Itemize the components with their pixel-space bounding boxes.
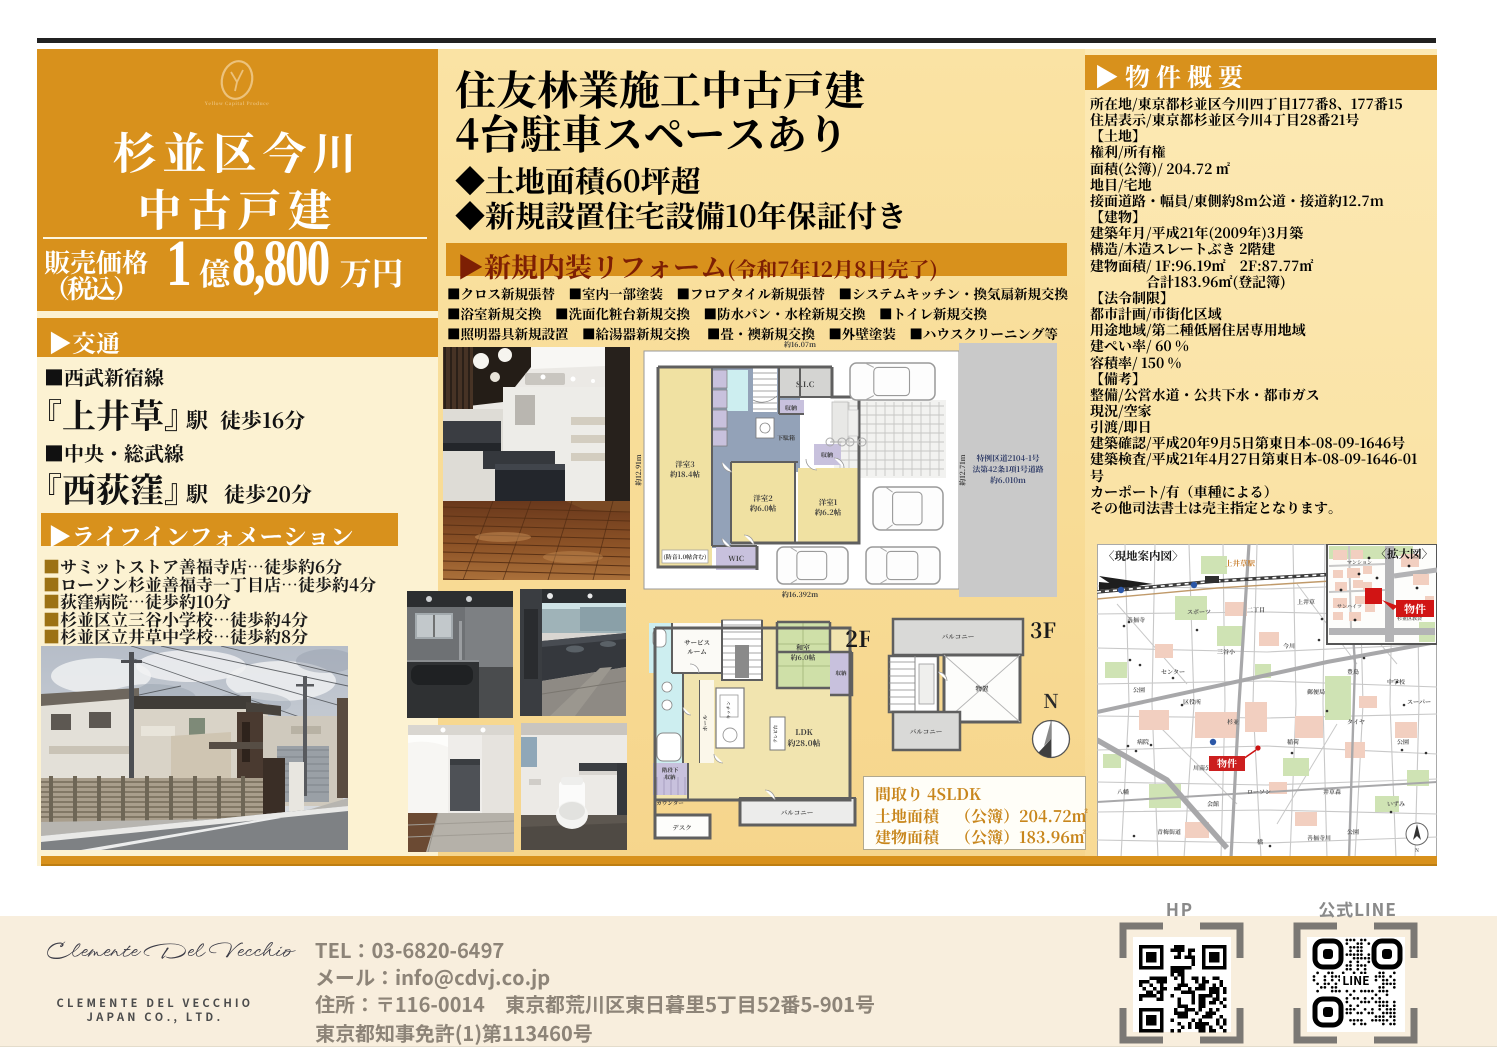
svg-text:S.I.C: S.I.C <box>796 379 814 390</box>
svg-text:上井草駅: 上井草駅 <box>1225 558 1255 569</box>
svg-text:約16.07m: 約16.07m <box>784 340 816 350</box>
svg-text:〈現地案内図〉: 〈現地案内図〉 <box>1103 548 1184 564</box>
svg-text:約18.4帖: 約18.4帖 <box>670 469 700 480</box>
svg-text:橋: 橋 <box>1257 837 1263 846</box>
svg-text:杉並: 杉並 <box>1227 717 1239 726</box>
svg-text:収納: 収納 <box>785 403 797 412</box>
svg-text:約16.392m: 約16.392m <box>782 590 818 600</box>
svg-text:上井草: 上井草 <box>1297 597 1315 606</box>
svg-text:法第42条1項1号道路: 法第42条1項1号道路 <box>972 464 1043 475</box>
svg-text:約6.2帖: 約6.2帖 <box>815 507 842 518</box>
svg-text:約6.010m: 約6.010m <box>990 475 1026 486</box>
svg-text:LINE: LINE <box>1342 972 1369 989</box>
svg-text:善福寺川: 善福寺川 <box>1307 833 1331 842</box>
svg-text:青梅街道: 青梅街道 <box>1157 827 1181 836</box>
svg-text:サービス: サービス <box>684 638 710 647</box>
svg-text:公園: 公園 <box>1347 827 1359 836</box>
svg-text:サンハイツ: サンハイツ <box>1337 603 1362 610</box>
svg-text:収納: 収納 <box>821 450 833 459</box>
svg-text:約28.0帖: 約28.0帖 <box>788 738 821 749</box>
svg-text:キッチン: キッチン <box>726 701 732 719</box>
svg-text:井草森: 井草森 <box>1323 787 1341 796</box>
svg-text:バルコニー: バルコニー <box>942 632 975 641</box>
svg-text:デスク: デスク <box>672 823 692 832</box>
svg-text:約12.91m: 約12.91m <box>634 454 644 485</box>
svg-text:特例区道2104-1号: 特例区道2104-1号 <box>976 453 1039 464</box>
svg-text:会館: 会館 <box>1207 799 1219 808</box>
svg-text:ローソン: ローソン <box>1247 787 1271 796</box>
svg-text:スーパー: スーパー <box>1407 697 1431 706</box>
svg-text:テレビ台: テレビ台 <box>773 725 779 743</box>
svg-text:病院: 病院 <box>1137 737 1149 746</box>
svg-text:Yellow Capital Produce: Yellow Capital Produce <box>205 101 270 107</box>
svg-text:バルコニー: バルコニー <box>781 808 814 817</box>
svg-text:3F: 3F <box>1030 615 1056 645</box>
svg-text:物置: 物置 <box>976 684 990 693</box>
svg-text:下駄箱: 下駄箱 <box>777 433 795 442</box>
svg-text:八幡: 八幡 <box>1117 787 1129 796</box>
svg-text:LDK: LDK <box>795 727 813 738</box>
svg-text:物件: 物件 <box>1217 755 1237 770</box>
svg-text:バルコニー: バルコニー <box>910 727 943 736</box>
svg-text:〈拡大図〉: 〈拡大図〉 <box>1376 546 1434 562</box>
svg-text:約6.0帖: 約6.0帖 <box>750 503 777 514</box>
svg-text:三谷小: 三谷小 <box>1217 647 1236 656</box>
svg-text:区役所: 区役所 <box>1183 697 1201 706</box>
svg-text:今川: 今川 <box>1283 641 1295 650</box>
svg-text:公園: 公園 <box>1133 685 1145 694</box>
svg-text:2F: 2F <box>845 623 870 654</box>
svg-text:マンション: マンション <box>1347 559 1372 566</box>
svg-text:N: N <box>1415 847 1419 854</box>
svg-text:タイヤ: タイヤ <box>1347 717 1365 726</box>
svg-text:公園: 公園 <box>1397 737 1409 746</box>
svg-text:スポーツ: スポーツ <box>1187 607 1211 616</box>
svg-text:WIC: WIC <box>728 554 744 564</box>
svg-text:物件: 物件 <box>1404 601 1426 617</box>
svg-text:豊島: 豊島 <box>1347 667 1359 676</box>
svg-text:約12.71m: 約12.71m <box>958 454 968 485</box>
svg-text:N: N <box>1043 692 1059 714</box>
svg-text:郵便局: 郵便局 <box>1307 687 1325 696</box>
svg-text:(防音1.0帖含む): (防音1.0帖含む) <box>663 552 706 561</box>
svg-text:センター: センター <box>1161 667 1185 676</box>
svg-text:稲荷: 稲荷 <box>1287 737 1299 746</box>
svg-text:約6.0帖: 約6.0帖 <box>791 653 816 663</box>
svg-text:収納: 収納 <box>835 669 847 677</box>
svg-text:いずみ: いずみ <box>1387 799 1405 808</box>
svg-text:ホール: ホール <box>701 714 709 731</box>
svg-text:ルーム: ルーム <box>687 647 707 656</box>
svg-text:収納: 収納 <box>664 773 676 781</box>
svg-text:二丁目: 二丁目 <box>1247 605 1265 614</box>
